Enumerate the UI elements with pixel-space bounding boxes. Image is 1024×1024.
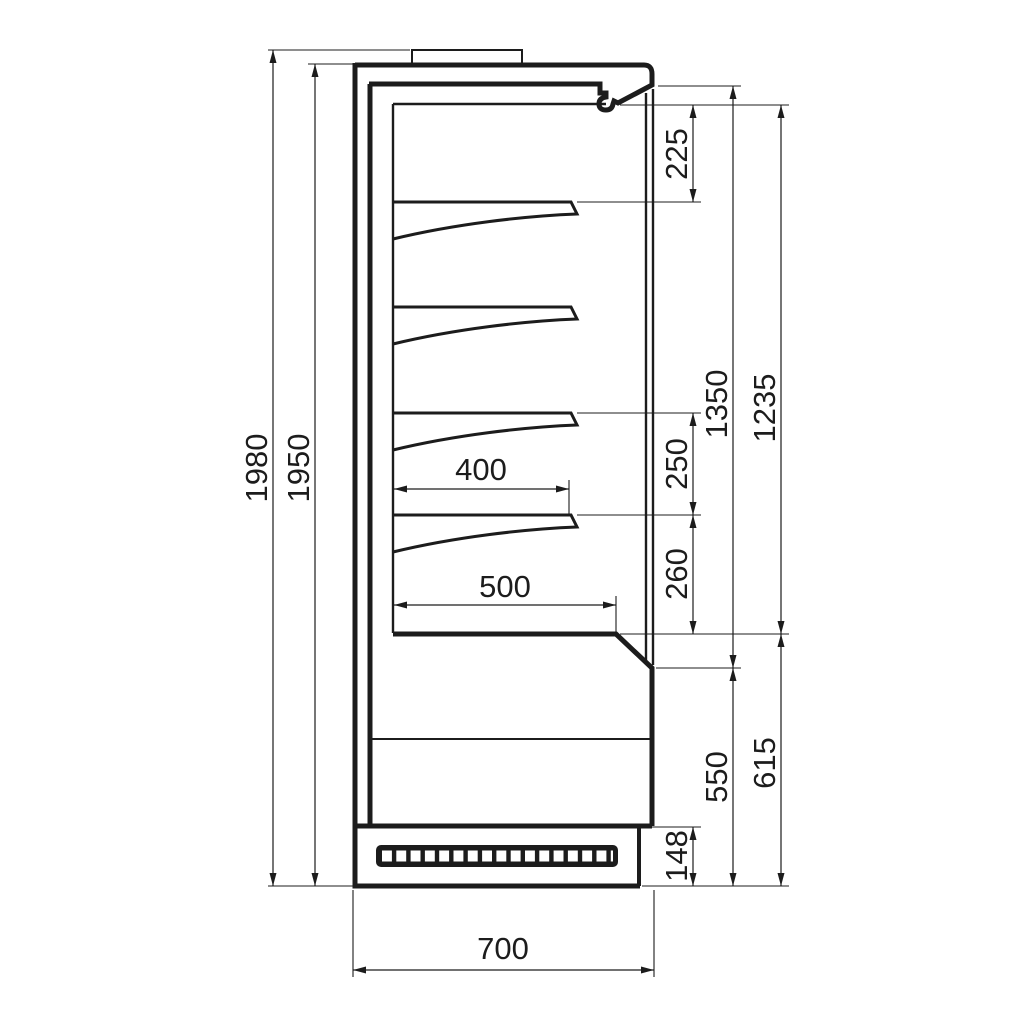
top-cap: [412, 50, 522, 64]
dim-label-canopy-to-shelf: 225: [659, 128, 694, 180]
dim-label-deck-height: 615: [747, 737, 782, 789]
dim-label-overall-height: 1980: [239, 434, 274, 503]
dim-overall-depth: 700: [353, 931, 654, 970]
dim-lower-front-height: 550: [699, 668, 734, 886]
dim-label-display-height: 1235: [747, 374, 782, 443]
dim-label-body-height: 1950: [281, 434, 316, 503]
dim-label-shelf-depth: 400: [455, 452, 507, 487]
dim-opening-height: 1350: [699, 86, 734, 668]
dim-label-lower-front-height: 550: [699, 751, 734, 803]
dim-canopy-to-shelf: 225: [659, 105, 694, 202]
shelf-2: [393, 307, 577, 344]
dim-deck-height: 615: [747, 634, 782, 886]
shelf-3: [393, 413, 577, 450]
dim-label-shelf-spacing-lower: 260: [659, 548, 694, 600]
dim-plinth-height: 148: [659, 827, 694, 886]
dim-label-deck-depth: 500: [479, 569, 531, 604]
dimensions: 1980 1950 225 250 260 148 1350 5: [239, 50, 782, 970]
dim-display-height: 1235: [747, 105, 782, 634]
dim-shelf-depth: 400: [394, 452, 569, 489]
dim-body-height: 1950: [281, 64, 316, 886]
dim-shelf-spacing-upper: 250: [659, 413, 694, 515]
dim-label-shelf-spacing-upper: 250: [659, 438, 694, 490]
dim-label-overall-depth: 700: [477, 931, 529, 966]
technical-drawing-page: 1980 1950 225 250 260 148 1350 5: [0, 0, 1024, 1024]
dim-label-opening-height: 1350: [699, 370, 734, 439]
vent-grille: [376, 845, 618, 867]
dim-overall-height: 1980: [239, 50, 274, 886]
cabinet-section-drawing: 1980 1950 225 250 260 148 1350 5: [0, 0, 1024, 1024]
dim-label-plinth-height: 148: [659, 830, 694, 882]
shelf-1: [393, 202, 577, 239]
deck-and-lower-front: [393, 634, 652, 826]
dim-shelf-spacing-lower: 260: [659, 515, 694, 634]
shelves: [393, 202, 577, 552]
shelf-4: [393, 515, 577, 552]
dim-deck-depth: 500: [394, 569, 616, 605]
